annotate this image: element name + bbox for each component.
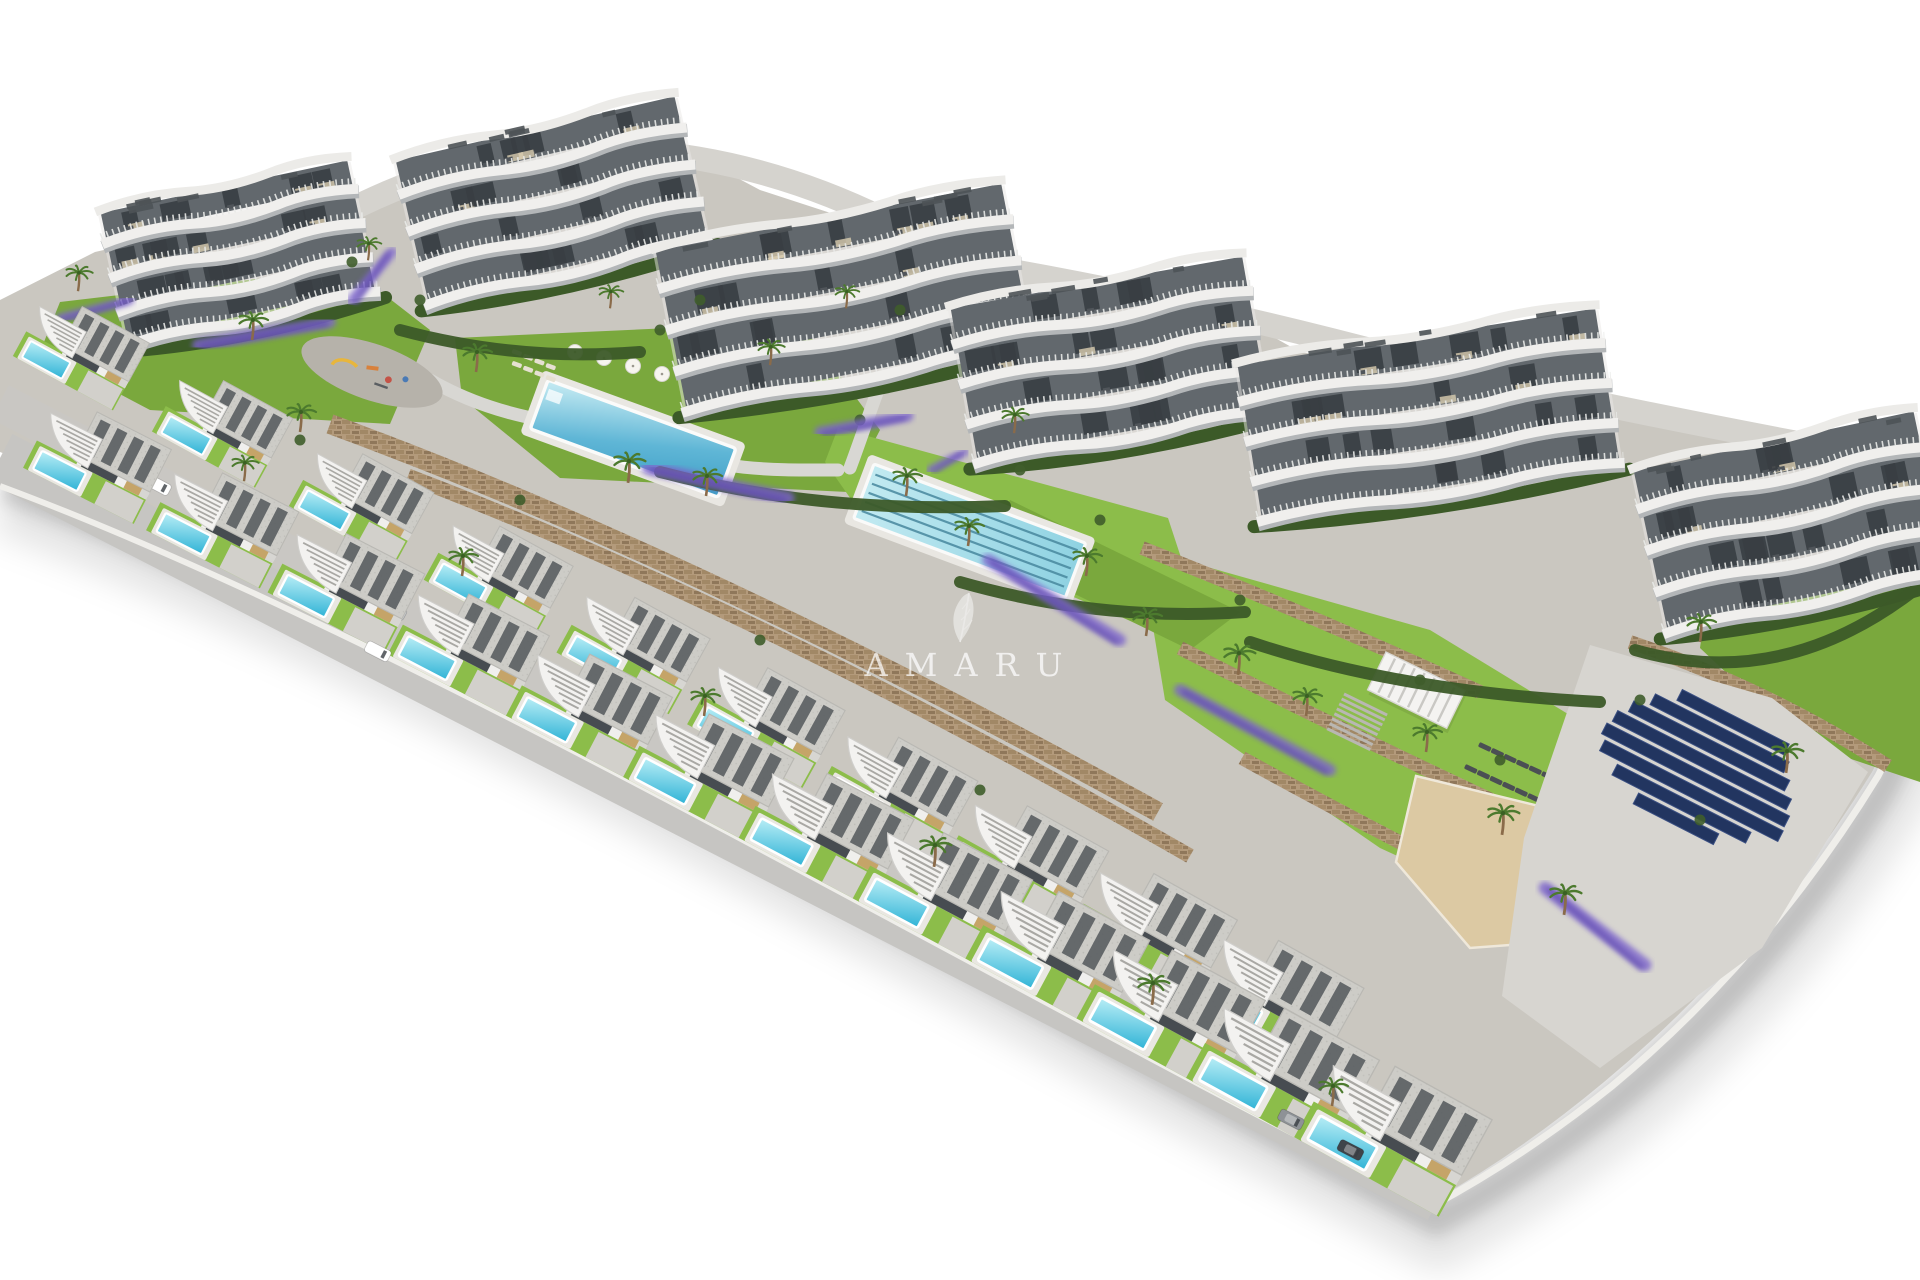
shrub — [1695, 815, 1706, 826]
shrub — [1635, 695, 1646, 706]
shrub — [895, 305, 906, 316]
palm-trunk — [846, 292, 847, 309]
shrub — [755, 635, 766, 646]
aerial-render: AMARU — [0, 0, 1920, 1280]
window — [1370, 427, 1394, 452]
shrub — [1015, 465, 1026, 476]
palm-trunk — [1786, 751, 1787, 773]
palm-trunk — [300, 412, 301, 432]
palm-crown — [1501, 811, 1505, 815]
palm-crown — [461, 554, 465, 558]
palm-trunk — [704, 696, 705, 716]
palm-crown — [1425, 730, 1429, 734]
watermark-text: AMARU — [863, 646, 1079, 684]
palm-crown — [367, 242, 370, 245]
palm-trunk — [1426, 732, 1427, 752]
shrub — [1415, 675, 1426, 686]
palm-crown — [1785, 749, 1789, 753]
shrub — [695, 295, 706, 306]
shrub — [415, 295, 426, 306]
palm-trunk — [462, 556, 463, 576]
window — [1577, 436, 1598, 461]
palm-trunk — [244, 463, 245, 481]
palm-trunk — [968, 526, 969, 546]
palm-crown — [299, 410, 303, 414]
palm-crown — [1563, 891, 1567, 895]
palm-trunk — [476, 352, 477, 372]
palm-trunk — [906, 476, 907, 496]
palm-trunk — [706, 476, 707, 496]
window — [1390, 341, 1419, 367]
palm-crown — [243, 461, 247, 465]
palm-trunk — [1564, 893, 1565, 915]
shrub — [295, 435, 306, 446]
palm-trunk — [1152, 983, 1153, 1005]
parasol-pole — [632, 365, 635, 368]
shrub — [515, 495, 526, 506]
palm-crown — [1331, 1084, 1335, 1088]
shrub — [1095, 515, 1106, 526]
shrub — [975, 785, 986, 796]
palm-crown — [845, 290, 848, 293]
palm-trunk — [368, 244, 369, 261]
palm-trunk — [1146, 616, 1147, 636]
window — [1305, 437, 1331, 463]
palm-trunk — [78, 273, 79, 291]
palm-trunk — [628, 461, 629, 483]
palm-trunk — [1700, 622, 1701, 642]
palm-crown — [1085, 554, 1089, 558]
shrub — [1235, 595, 1246, 606]
palm-crown — [705, 474, 709, 478]
palm-trunk — [770, 347, 771, 365]
render-canvas: AMARU — [0, 0, 1920, 1280]
palm-trunk — [1014, 415, 1015, 433]
palm-crown — [77, 271, 81, 275]
palm-crown — [967, 524, 971, 528]
palm-crown — [905, 474, 909, 478]
palm-crown — [609, 290, 612, 293]
palm-trunk — [934, 845, 935, 867]
palm-trunk — [1306, 696, 1307, 716]
window — [1535, 402, 1555, 427]
shrub — [1495, 755, 1506, 766]
parasol-pole — [661, 373, 664, 376]
palm-crown — [703, 694, 707, 698]
window — [1342, 432, 1362, 457]
shrub — [347, 257, 358, 268]
palm-trunk — [1502, 813, 1503, 835]
palm-trunk — [1238, 653, 1239, 675]
palm-crown — [1237, 651, 1241, 655]
palm-crown — [627, 459, 631, 463]
palm-crown — [1151, 981, 1155, 985]
palm-crown — [1699, 620, 1703, 624]
shrub — [655, 325, 666, 336]
palm-crown — [1145, 614, 1149, 618]
palm-crown — [475, 350, 479, 354]
palm-trunk — [610, 292, 611, 309]
palm-trunk — [1332, 1086, 1333, 1106]
palm-crown — [1013, 413, 1017, 417]
palm-trunk — [1086, 556, 1087, 576]
palm-crown — [251, 318, 255, 322]
palm-crown — [1305, 694, 1309, 698]
palm-crown — [769, 345, 773, 349]
palm-crown — [933, 843, 937, 847]
palm-trunk — [252, 320, 253, 340]
